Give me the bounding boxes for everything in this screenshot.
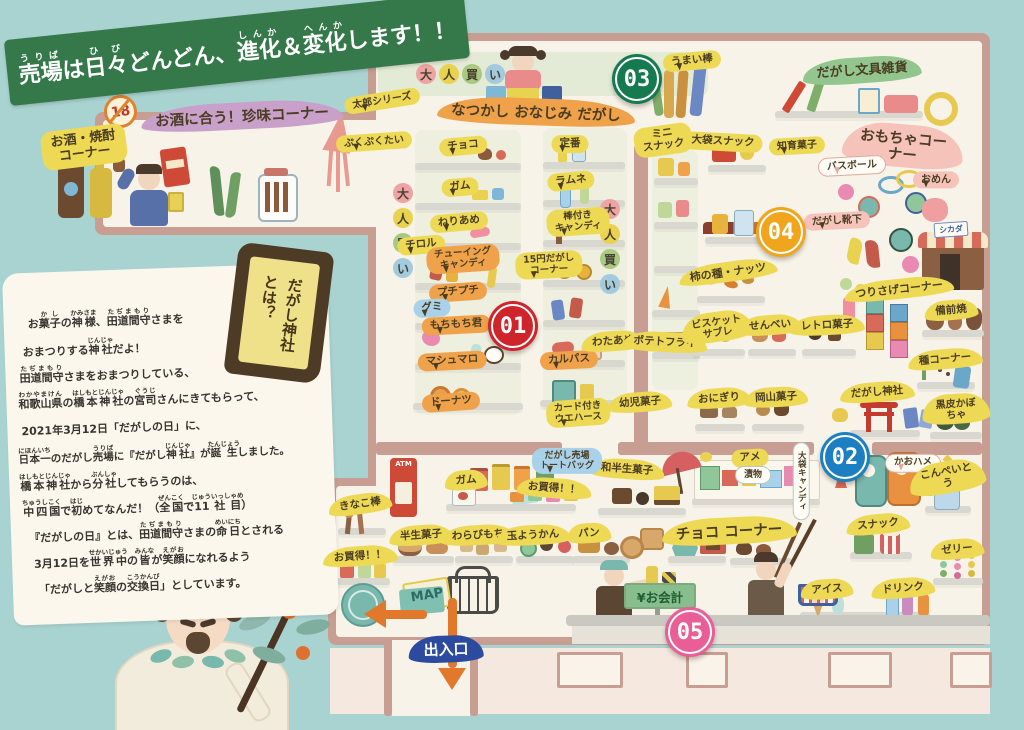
label-marshmallow: マシュマロ bbox=[417, 350, 486, 371]
shelf bbox=[654, 178, 698, 185]
shelf bbox=[668, 556, 726, 563]
label-mochimochi-kun: もちもち君 bbox=[421, 314, 490, 335]
shelf bbox=[415, 163, 521, 170]
interior-wall bbox=[618, 442, 814, 455]
shelf bbox=[598, 508, 686, 515]
window bbox=[686, 652, 728, 688]
atm-machine: ATM bbox=[390, 458, 417, 517]
arrow-down-icon bbox=[438, 668, 466, 704]
note-line: 『だがしの日』とは、田道間守たぢまもりさまの命日めいにちとされる bbox=[29, 516, 285, 546]
shelf bbox=[752, 424, 804, 431]
door-frame bbox=[384, 640, 392, 716]
shelf bbox=[697, 296, 765, 303]
shelf bbox=[748, 349, 796, 356]
map-stop-05: 05 bbox=[665, 607, 715, 657]
label-teiban: 定番 bbox=[552, 135, 589, 153]
label-jugoen-corner: 15円だがし コーナー bbox=[515, 250, 584, 281]
map-stop-02: 02 bbox=[820, 432, 870, 482]
note-line: 3月12日を世界中せかいじゅうの皆みんなが笑顔えがおになれるよう bbox=[34, 543, 251, 572]
shelf bbox=[850, 430, 920, 437]
shelf bbox=[933, 578, 983, 585]
shelf bbox=[516, 556, 574, 563]
shelf bbox=[922, 330, 984, 337]
shelf bbox=[392, 556, 454, 563]
arrow-left-icon bbox=[350, 600, 386, 628]
shrine-sign-frame: だがし神社 とは？ bbox=[223, 242, 334, 385]
label-gumi: グミ bbox=[413, 298, 451, 318]
otona-gai-circles-left: 大人買い bbox=[393, 183, 413, 278]
note-line: 「だがしと笑顔えがおの交換日こうかんび」としています。 bbox=[39, 569, 247, 597]
label-tote-bag: だがし売場 トートバッグ bbox=[532, 448, 602, 474]
note-line: 日本一にほんいちのだがし売場うりばに『だがし神社じんじゃ』が誕生たんじょうしまし… bbox=[18, 438, 290, 467]
note-line: お菓子かしの神様かみさま、田道間守たぢまもりさまを bbox=[27, 305, 184, 331]
checkout-sign: ¥お会計 bbox=[624, 583, 696, 609]
shelf bbox=[543, 162, 625, 169]
shikada-sign: シカダ bbox=[934, 221, 969, 238]
map-stop-04: 04 bbox=[756, 207, 806, 257]
shelf bbox=[543, 320, 625, 327]
window bbox=[557, 652, 623, 688]
label-dagashi-socks: だがし靴下 bbox=[804, 211, 871, 232]
label-obukuro-candy: 大袋キャンディ bbox=[793, 442, 810, 520]
shelf bbox=[695, 424, 745, 431]
otona-gai-circles-top: 大人買い bbox=[416, 64, 505, 84]
shelf bbox=[455, 556, 513, 563]
note-line: 橋本神社はしもとじんじゃから分社ぶんしゃしてもらうのは、 bbox=[19, 467, 204, 494]
label-bath-ball: バスボール bbox=[818, 155, 887, 178]
label-tsukemono: 漬物 bbox=[735, 466, 771, 484]
note-line: 2021年3月12日「だがしの日」に、 bbox=[21, 417, 207, 439]
window bbox=[950, 652, 992, 688]
checkout-counter-front bbox=[572, 626, 990, 644]
atm-label: ATM bbox=[395, 460, 412, 468]
shelf bbox=[802, 349, 856, 356]
note-line: 和歌山県わかやまけんの橋本神社はしもとじんじゃの宮司ぐうじさんにきてもらって、 bbox=[18, 383, 265, 413]
label-chiiku-gashi: 知育菓子 bbox=[769, 136, 826, 156]
label-gum-upper: ガム bbox=[441, 177, 479, 198]
note-line: おまつりする神社じんじゃだよ！ bbox=[22, 335, 146, 360]
basket-handle bbox=[455, 566, 491, 583]
label-ame: アメ bbox=[731, 448, 769, 468]
shelf bbox=[654, 222, 698, 229]
label-card-wafer: カード付き ウエハース bbox=[545, 397, 610, 429]
label-karupasu: カルパス bbox=[540, 350, 599, 371]
dagashi-store-map: 売場うりばは日々ひびどんどん、進化しんか＆変化へんかします！！ 18 お酒・焼酎… bbox=[0, 0, 1024, 730]
shrine-sign-text: だがし神社 とは？ bbox=[251, 273, 308, 353]
window bbox=[828, 652, 892, 688]
label-omen: おめん bbox=[913, 171, 959, 188]
shelf bbox=[930, 432, 982, 439]
note-line: 中四国ちゅうしこくで初はじめてなんだ！（全国ぜんこくで11社目じゅういっしゃめ） bbox=[22, 491, 253, 520]
map-stop-01: 01 bbox=[488, 301, 538, 351]
map-stop-03: 03 bbox=[612, 54, 662, 104]
label-chewing-candy: チューイング キャンディ bbox=[426, 243, 501, 275]
shrine-sign-inner: だがし神社 とは？ bbox=[238, 256, 320, 370]
shelf bbox=[708, 165, 766, 172]
shelf bbox=[415, 203, 521, 210]
checkout-counter bbox=[566, 615, 990, 626]
note-line: 田道間守たぢまもりさまをおまつりしている、 bbox=[19, 359, 195, 386]
map-sign: MAP bbox=[402, 577, 452, 614]
shelf bbox=[652, 310, 700, 317]
label-bo-tsuki-candy: 棒付き キャンディ bbox=[546, 206, 611, 238]
